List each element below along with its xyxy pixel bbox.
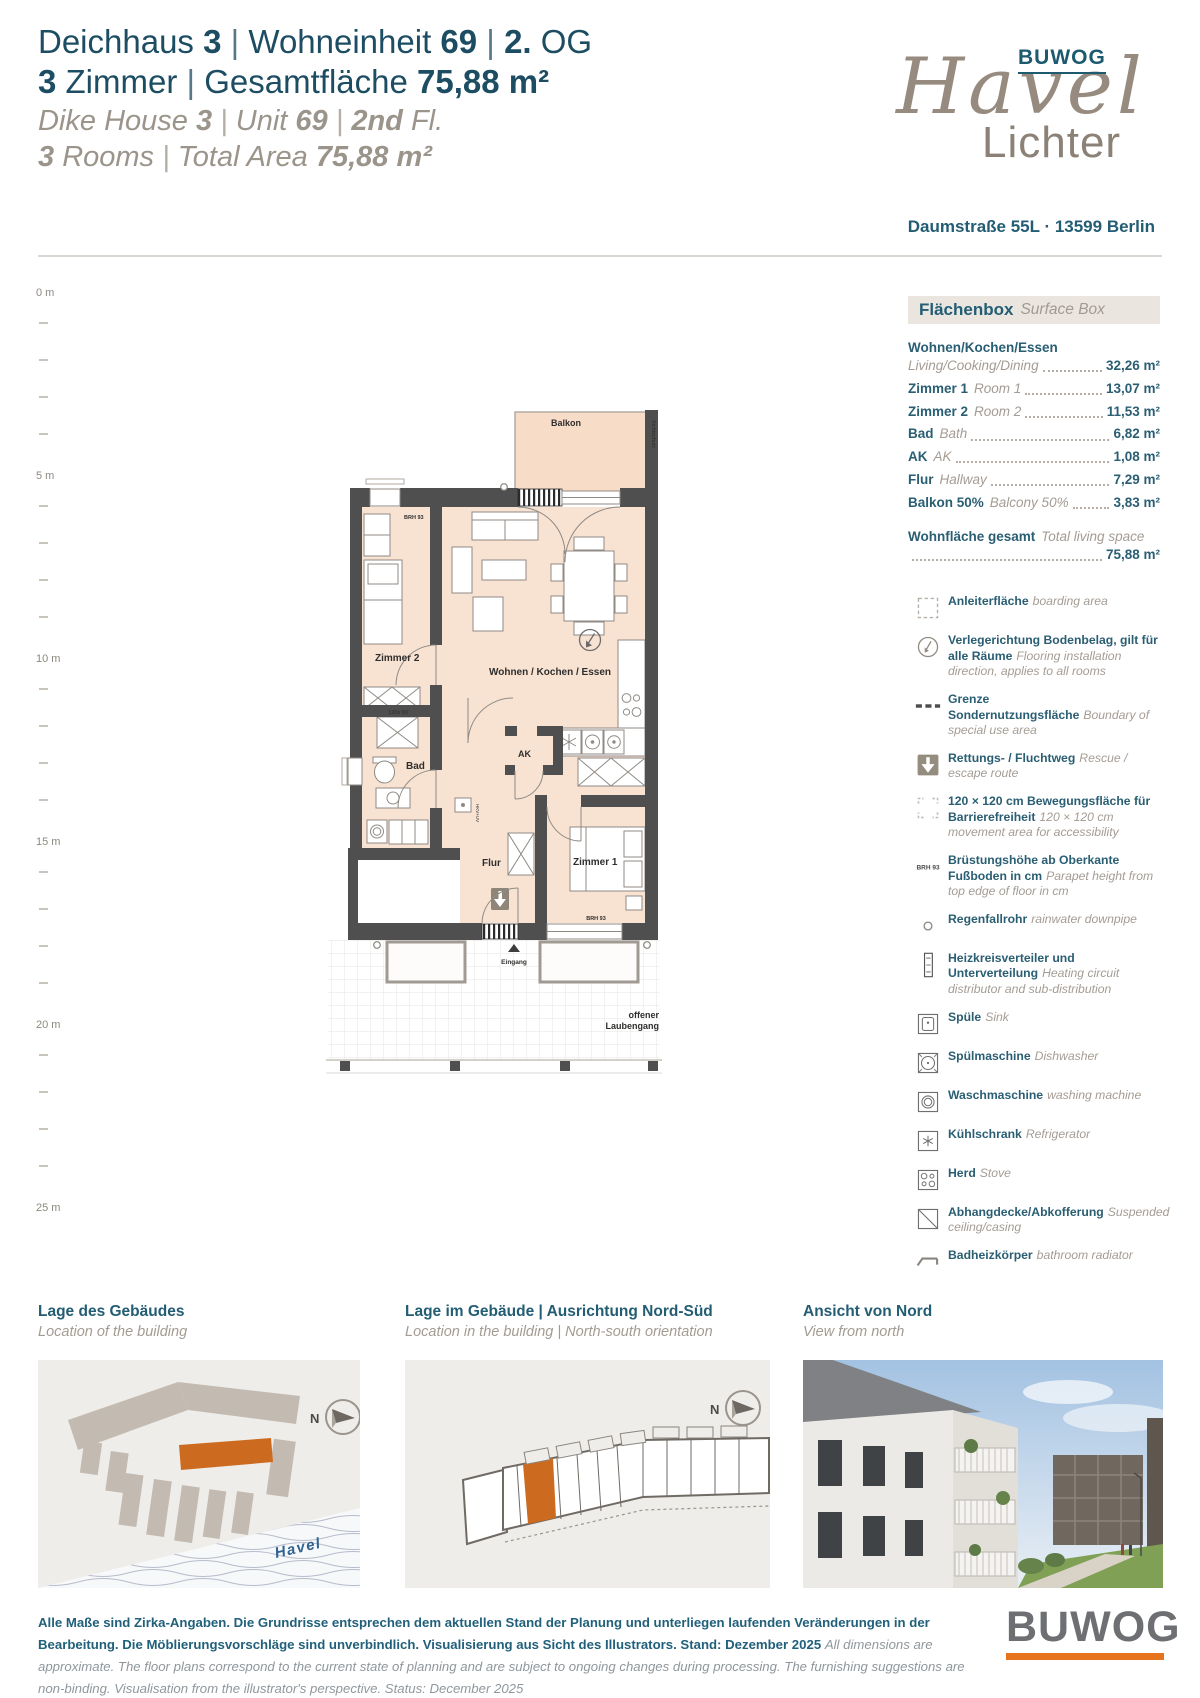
area-value: 11,53 m² xyxy=(1107,403,1160,421)
legend-label-de: Badheizkörper xyxy=(948,1248,1033,1262)
header-divider xyxy=(38,255,1162,257)
ruler-tick xyxy=(39,1054,48,1056)
area-row: AK AK 1,08 m² xyxy=(908,448,1160,466)
pipe-icon xyxy=(908,912,948,939)
nightstand xyxy=(626,896,642,910)
ruler-tick xyxy=(39,982,48,984)
stove-icon xyxy=(908,1166,948,1193)
ruler-segment: 10 m xyxy=(36,649,96,832)
legend-text: Waschmaschinewashing machine xyxy=(948,1088,1141,1115)
ruler-tick xyxy=(39,908,48,910)
dotted-leader xyxy=(1025,393,1102,395)
legend-item: Rettungs- / FluchtwegRescue / escape rou… xyxy=(908,751,1160,782)
legend-text: SpüleSink xyxy=(948,1010,1009,1037)
total-value: 75,88 m² xyxy=(1106,546,1160,564)
panel-position-title: Lage im Gebäude | Ausrichtung Nord-Süd L… xyxy=(405,1303,785,1340)
title-segment: Gesamtfläche xyxy=(204,63,417,100)
legend-label-en: Sink xyxy=(985,1010,1009,1024)
compass-n: N xyxy=(310,1411,319,1426)
bath-label: Bad xyxy=(406,761,425,772)
legend-label-en: washing machine xyxy=(1047,1088,1141,1102)
ruler-segment: 20 m xyxy=(36,1015,96,1198)
compass-n: N xyxy=(710,1402,719,1417)
walkway-box xyxy=(540,942,638,982)
ruler-segment: 25 m xyxy=(36,1198,96,1381)
legend-item: Heizkreisverteiler und UnterverteilungHe… xyxy=(908,951,1160,998)
ruler-tick xyxy=(39,871,48,873)
legend-text: KühlschrankRefrigerator xyxy=(948,1127,1090,1154)
panel-location-title: Lage des Gebäudes Location of the buildi… xyxy=(38,1303,418,1340)
balconies xyxy=(955,1448,1015,1576)
title-segment: Total Area xyxy=(178,141,316,173)
legend-item: Grenze SondernutzungsflächeBoundary of s… xyxy=(908,692,1160,739)
title-segment: Zimmer xyxy=(56,63,177,100)
area-label-de: Bad xyxy=(908,425,934,443)
total-label-de: Wohnfläche gesamt xyxy=(908,528,1035,546)
ruler-tick xyxy=(39,396,48,398)
panel-title-de: Lage im Gebäude | Ausrichtung Nord-Süd xyxy=(405,1303,785,1321)
lichter-logo: Lichter xyxy=(982,118,1121,168)
privacy-screen-label: Sichtschutz xyxy=(650,420,656,448)
surface-box: Flächenbox Surface Box Wohnen/Kochen/Ess… xyxy=(908,296,1160,1287)
direction-icon xyxy=(908,633,948,680)
title-segment: Wohneinheit xyxy=(248,23,440,60)
legend-text: HerdStove xyxy=(948,1166,1011,1193)
sink-icon xyxy=(908,1010,948,1037)
legend-item: Regenfallrohrrainwater downpipe xyxy=(908,912,1160,939)
title-segment: | xyxy=(212,105,236,137)
washbasin xyxy=(376,788,410,808)
area-value: 3,83 m² xyxy=(1113,494,1160,512)
legend-label-de: Anleiterfläche xyxy=(948,594,1029,608)
legend-text: Brüstungshöhe ab Oberkante Fußboden in c… xyxy=(948,853,1160,900)
legend-label-en: bathroom radiator xyxy=(1037,1248,1133,1262)
page-title: Deichhaus 3 | Wohneinheit 69 | 2. OG 3 Z… xyxy=(38,22,592,176)
rescue-route-icon xyxy=(491,888,509,910)
ruler-label: 15 m xyxy=(36,836,60,848)
area-row: Wohnen/Kochen/Essen Living/Cooking/Dinin… xyxy=(908,339,1160,375)
chair xyxy=(551,596,563,613)
area-label-de: Zimmer 2 xyxy=(908,403,968,421)
ruler-tick xyxy=(39,433,48,435)
legend-label-de: Herd xyxy=(948,1166,976,1180)
legend-item: Badheizkörperbathroom radiator xyxy=(908,1248,1160,1275)
ruler-tick xyxy=(39,799,48,801)
area-label-en: Living/Cooking/Dining xyxy=(908,357,1039,375)
hkv-label: HKV+UV xyxy=(475,804,480,822)
hall-label: Flur xyxy=(482,858,501,869)
project-address: Daumstraße 55L · 13599 Berlin xyxy=(700,217,1155,237)
area-label-de: Flur xyxy=(908,471,934,489)
title-segment: Unit xyxy=(236,105,296,137)
legend-label-de: Spüle xyxy=(948,1010,981,1024)
ruler-tick xyxy=(39,359,48,361)
legend-label-en: Stove xyxy=(980,1166,1011,1180)
title-line: 3 Zimmer | Gesamtfläche 75,88 m² xyxy=(38,62,592,102)
legend-item: Abhangdecke/AbkofferungSuspended ceiling… xyxy=(908,1205,1160,1236)
ruler-tick xyxy=(39,505,48,507)
title-line: 3 Rooms | Total Area 75,88 m² xyxy=(38,139,592,176)
title-segment: | xyxy=(154,141,178,173)
legend-item: SpülmaschineDishwasher xyxy=(908,1049,1160,1076)
buwog-logo: BUWOG xyxy=(1018,46,1106,74)
title-segment: 3 xyxy=(203,23,221,60)
panel-title-de: Lage des Gebäudes xyxy=(38,1303,418,1321)
ruler-segment: 5 m xyxy=(36,466,96,649)
fridge-icon xyxy=(908,1127,948,1154)
chair xyxy=(551,564,563,581)
person xyxy=(1121,1544,1124,1555)
buwog-wordmark: BUWOG xyxy=(1006,1606,1164,1649)
ruler-label: 25 m xyxy=(36,1202,60,1214)
gallery-label-2: Laubengang xyxy=(606,1021,660,1031)
legend-item: Brüstungshöhe ab Oberkante Fußboden in c… xyxy=(908,853,1160,900)
legend-text: SpülmaschineDishwasher xyxy=(948,1049,1098,1076)
legend-text: Abhangdecke/AbkofferungSuspended ceiling… xyxy=(948,1205,1169,1236)
ruler-label: 20 m xyxy=(36,1019,60,1031)
legend-label-de: Grenze Sondernutzungsfläche xyxy=(948,692,1079,722)
legend-label-de: Regenfallrohr xyxy=(948,912,1027,926)
legend-text: Grenze SondernutzungsflächeBoundary of s… xyxy=(948,692,1160,739)
area-label-en: Bath xyxy=(940,425,968,443)
area-label-en: Room 1 xyxy=(974,380,1021,398)
legend-text: Heizkreisverteiler und UnterverteilungHe… xyxy=(948,951,1160,998)
living-label: Wohnen / Kochen / Essen xyxy=(489,667,611,678)
anleiter-icon xyxy=(908,594,948,621)
area-row: Zimmer 1 Room 1 13,07 m² xyxy=(908,380,1160,398)
chair xyxy=(615,596,627,613)
title-segment: Rooms xyxy=(54,141,154,173)
legend-item: SpüleSink xyxy=(908,1010,1160,1037)
title-segment: 75,88 m² xyxy=(417,63,549,100)
title-line: Dike House 3 | Unit 69 | 2nd Fl. xyxy=(38,103,592,140)
area-label-de: Zimmer 1 xyxy=(908,380,968,398)
legend-text: Badheizkörperbathroom radiator xyxy=(948,1248,1133,1275)
area-list: Wohnen/Kochen/Essen Living/Cooking/Dinin… xyxy=(908,339,1160,512)
area-value: 13,07 m² xyxy=(1106,380,1160,398)
area-row: Flur Hallway 7,29 m² xyxy=(908,471,1160,489)
room1-label: Zimmer 1 xyxy=(573,857,618,868)
disclaimer-de: Alle Maße sind Zirka-Angaben. Die Grundr… xyxy=(38,1615,930,1652)
floor-plan: Balkon Sichtschutz BRH 93 Zimmer 2 120x … xyxy=(318,368,662,1078)
area-label-de: AK xyxy=(908,448,928,466)
highlighted-unit xyxy=(523,1458,556,1524)
dotted-leader xyxy=(912,559,1102,561)
title-segment: 75,88 m² xyxy=(316,141,432,173)
north-view-rendering xyxy=(803,1360,1163,1588)
floorplan-sheet: BRH 93 Deichhaus 3 | Wohneinheit 69 | 2.… xyxy=(0,0,1200,1698)
surface-box-header: Flächenbox Surface Box xyxy=(908,296,1160,324)
area-label-de: Balkon 50% xyxy=(908,494,984,512)
ruler-tick xyxy=(39,945,48,947)
legend-label-en: Refrigerator xyxy=(1026,1127,1090,1141)
ruler-segment: 0 m xyxy=(36,283,96,466)
armchair xyxy=(473,597,503,631)
legend-label-en: boarding area xyxy=(1033,594,1108,608)
area-row: Zimmer 2 Room 2 11,53 m² xyxy=(908,403,1160,421)
title-segment: | xyxy=(221,23,248,60)
dotted-leader xyxy=(991,484,1110,486)
site-map: Havel N xyxy=(38,1360,360,1588)
area-label-en: Hallway xyxy=(940,471,987,489)
dining-table xyxy=(564,551,614,621)
ruler-label: 5 m xyxy=(36,470,54,482)
panel-title-en: Location of the building xyxy=(38,1324,418,1340)
entrance-label: Eingang xyxy=(501,959,527,966)
title-segment: Fl. xyxy=(403,105,443,137)
ruler-tick xyxy=(39,579,48,581)
area-row: Bad Bath 6,82 m² xyxy=(908,425,1160,443)
area-label-en: Room 2 xyxy=(974,403,1021,421)
buwog-orange-bar xyxy=(1006,1653,1164,1660)
area-value: 7,29 m² xyxy=(1113,471,1160,489)
legend-text: Anleiterflächeboarding area xyxy=(948,594,1108,621)
parapet-label: BRH 93 xyxy=(586,916,606,922)
chair xyxy=(574,622,604,635)
ruler-tick xyxy=(39,616,48,618)
chair xyxy=(574,537,604,550)
title-segment: 3 xyxy=(38,141,54,173)
total-area: Wohnfläche gesamt Total living space 75,… xyxy=(908,528,1160,564)
ruler-label: 0 m xyxy=(36,287,54,299)
move-icon xyxy=(908,794,948,841)
legend-text: Rettungs- / FluchtwegRescue / escape rou… xyxy=(948,751,1160,782)
parapet-label: BRH 93 xyxy=(404,515,424,521)
footer-disclaimer: Alle Maße sind Zirka-Angaben. Die Grundr… xyxy=(38,1612,986,1698)
title-segment: | xyxy=(477,23,504,60)
balcony-floor xyxy=(515,412,648,495)
ruler-tick xyxy=(39,762,48,764)
building-facade xyxy=(803,1410,953,1588)
area-row: Balkon 50% Balcony 50% 3,83 m² xyxy=(908,494,1160,512)
gallery-label-1: offener xyxy=(628,1010,659,1020)
chair xyxy=(615,564,627,581)
legend-item: KühlschrankRefrigerator xyxy=(908,1127,1160,1154)
room2-label: Zimmer 2 xyxy=(375,653,420,664)
ruler-segment: 15 m xyxy=(36,832,96,1015)
panel-title-en: View from north xyxy=(803,1324,1183,1340)
rescue-icon xyxy=(908,751,948,782)
building-position-map: N xyxy=(405,1360,770,1588)
legend-text: 120 × 120 cm Bewegungsfläche für Barrier… xyxy=(948,794,1160,841)
legend-label-en: rainwater downpipe xyxy=(1031,912,1137,926)
surface-box-title-de: Flächenbox xyxy=(919,300,1013,320)
area-label-en: AK xyxy=(934,448,952,466)
hkv-icon xyxy=(908,951,948,998)
dish-icon xyxy=(908,1049,948,1076)
scale-ruler: 0 m 5 m 10 m 15 m xyxy=(36,283,96,1381)
panel-title-en: Location in the building | North-south o… xyxy=(405,1324,785,1340)
area-value: 32,26 m² xyxy=(1106,357,1160,375)
toilet xyxy=(375,761,395,783)
legend-label-en: Dishwasher xyxy=(1035,1049,1099,1063)
title-segment: 69 xyxy=(440,23,477,60)
legend-text: Regenfallrohrrainwater downpipe xyxy=(948,912,1137,939)
walkway-box xyxy=(387,942,465,982)
area-value: 1,08 m² xyxy=(1113,448,1160,466)
ruler-tick xyxy=(39,322,48,324)
brand-logo: Havel BUWOG Lichter xyxy=(878,24,1164,214)
radiator-icon xyxy=(908,1248,948,1275)
ruler-label: 10 m xyxy=(36,653,60,665)
title-segment: | xyxy=(177,63,204,100)
kitchen-counter xyxy=(618,640,645,728)
balcony-label: Balkon xyxy=(551,418,581,428)
panel-view-title: Ansicht von Nord View from north xyxy=(803,1303,1183,1340)
ruler-tick xyxy=(39,688,48,690)
bath-counter xyxy=(389,820,428,844)
panel-title-de: Ansicht von Nord xyxy=(803,1303,1183,1321)
sideboard xyxy=(452,547,472,593)
title-segment: 2. xyxy=(504,23,532,60)
legend-text: Verlegerichtung Bodenbelag, gilt für all… xyxy=(948,633,1160,680)
legend-label-de: Waschmaschine xyxy=(948,1088,1043,1102)
title-segment: 3 xyxy=(38,63,56,100)
footer-logo: BUWOG xyxy=(1006,1606,1164,1660)
dotted-leader xyxy=(971,439,1109,441)
title-segment: 3 xyxy=(196,105,212,137)
dotted-leader xyxy=(1025,416,1102,418)
dotted-leader xyxy=(1043,370,1102,372)
title-segment: Dike House xyxy=(38,105,196,137)
surface-box-title-en: Surface Box xyxy=(1020,301,1104,319)
coffee-table xyxy=(482,560,526,580)
legend-label-de: Abhangdecke/Abkofferung xyxy=(948,1205,1104,1219)
ruler-tick xyxy=(39,542,48,544)
title-segment: 2nd xyxy=(351,105,403,137)
title-segment: | xyxy=(328,105,352,137)
balcony-threshold xyxy=(518,489,562,506)
title-segment: 69 xyxy=(295,105,327,137)
wash-icon xyxy=(908,1088,948,1115)
legend-item: Waschmaschinewashing machine xyxy=(908,1088,1160,1115)
legend-item: HerdStove xyxy=(908,1166,1160,1193)
area-label-de: Wohnen/Kochen/Essen xyxy=(908,339,1058,357)
total-label-en: Total living space xyxy=(1041,528,1144,546)
ruler-tick xyxy=(39,725,48,727)
legend-label-de: Rettungs- / Fluchtweg xyxy=(948,751,1075,765)
legend: Anleiterflächeboarding area Verlegericht… xyxy=(908,594,1160,1275)
title-segment: Deichhaus xyxy=(38,23,203,60)
ruler-tick xyxy=(39,1091,48,1093)
ruler-tick xyxy=(39,1128,48,1130)
ceiling-icon xyxy=(908,1205,948,1236)
brh-icon xyxy=(908,853,948,900)
grenze-icon xyxy=(908,692,948,739)
area-value: 6,82 m² xyxy=(1113,425,1160,443)
person xyxy=(1129,1545,1132,1555)
legend-label-de: Kühlschrank xyxy=(948,1127,1022,1141)
legend-label-de: Spülmaschine xyxy=(948,1049,1031,1063)
dotted-leader xyxy=(956,461,1110,463)
legend-item: 120 × 120 cm Bewegungsfläche für Barrier… xyxy=(908,794,1160,841)
shower-size-label: 120x 90 xyxy=(388,710,408,716)
kitchen-island xyxy=(578,758,645,786)
dotted-leader xyxy=(1073,507,1110,509)
entrance-threshold xyxy=(482,924,518,939)
title-segment: OG xyxy=(532,23,593,60)
ak-label: AK xyxy=(518,749,531,759)
legend-item: Anleiterflächeboarding area xyxy=(908,594,1160,621)
legend-item: Verlegerichtung Bodenbelag, gilt für all… xyxy=(908,633,1160,680)
area-label-en: Balcony 50% xyxy=(990,494,1069,512)
title-line: Deichhaus 3 | Wohneinheit 69 | 2. OG xyxy=(38,22,592,62)
ruler-tick xyxy=(39,1165,48,1167)
walkway-columns xyxy=(340,1061,658,1071)
